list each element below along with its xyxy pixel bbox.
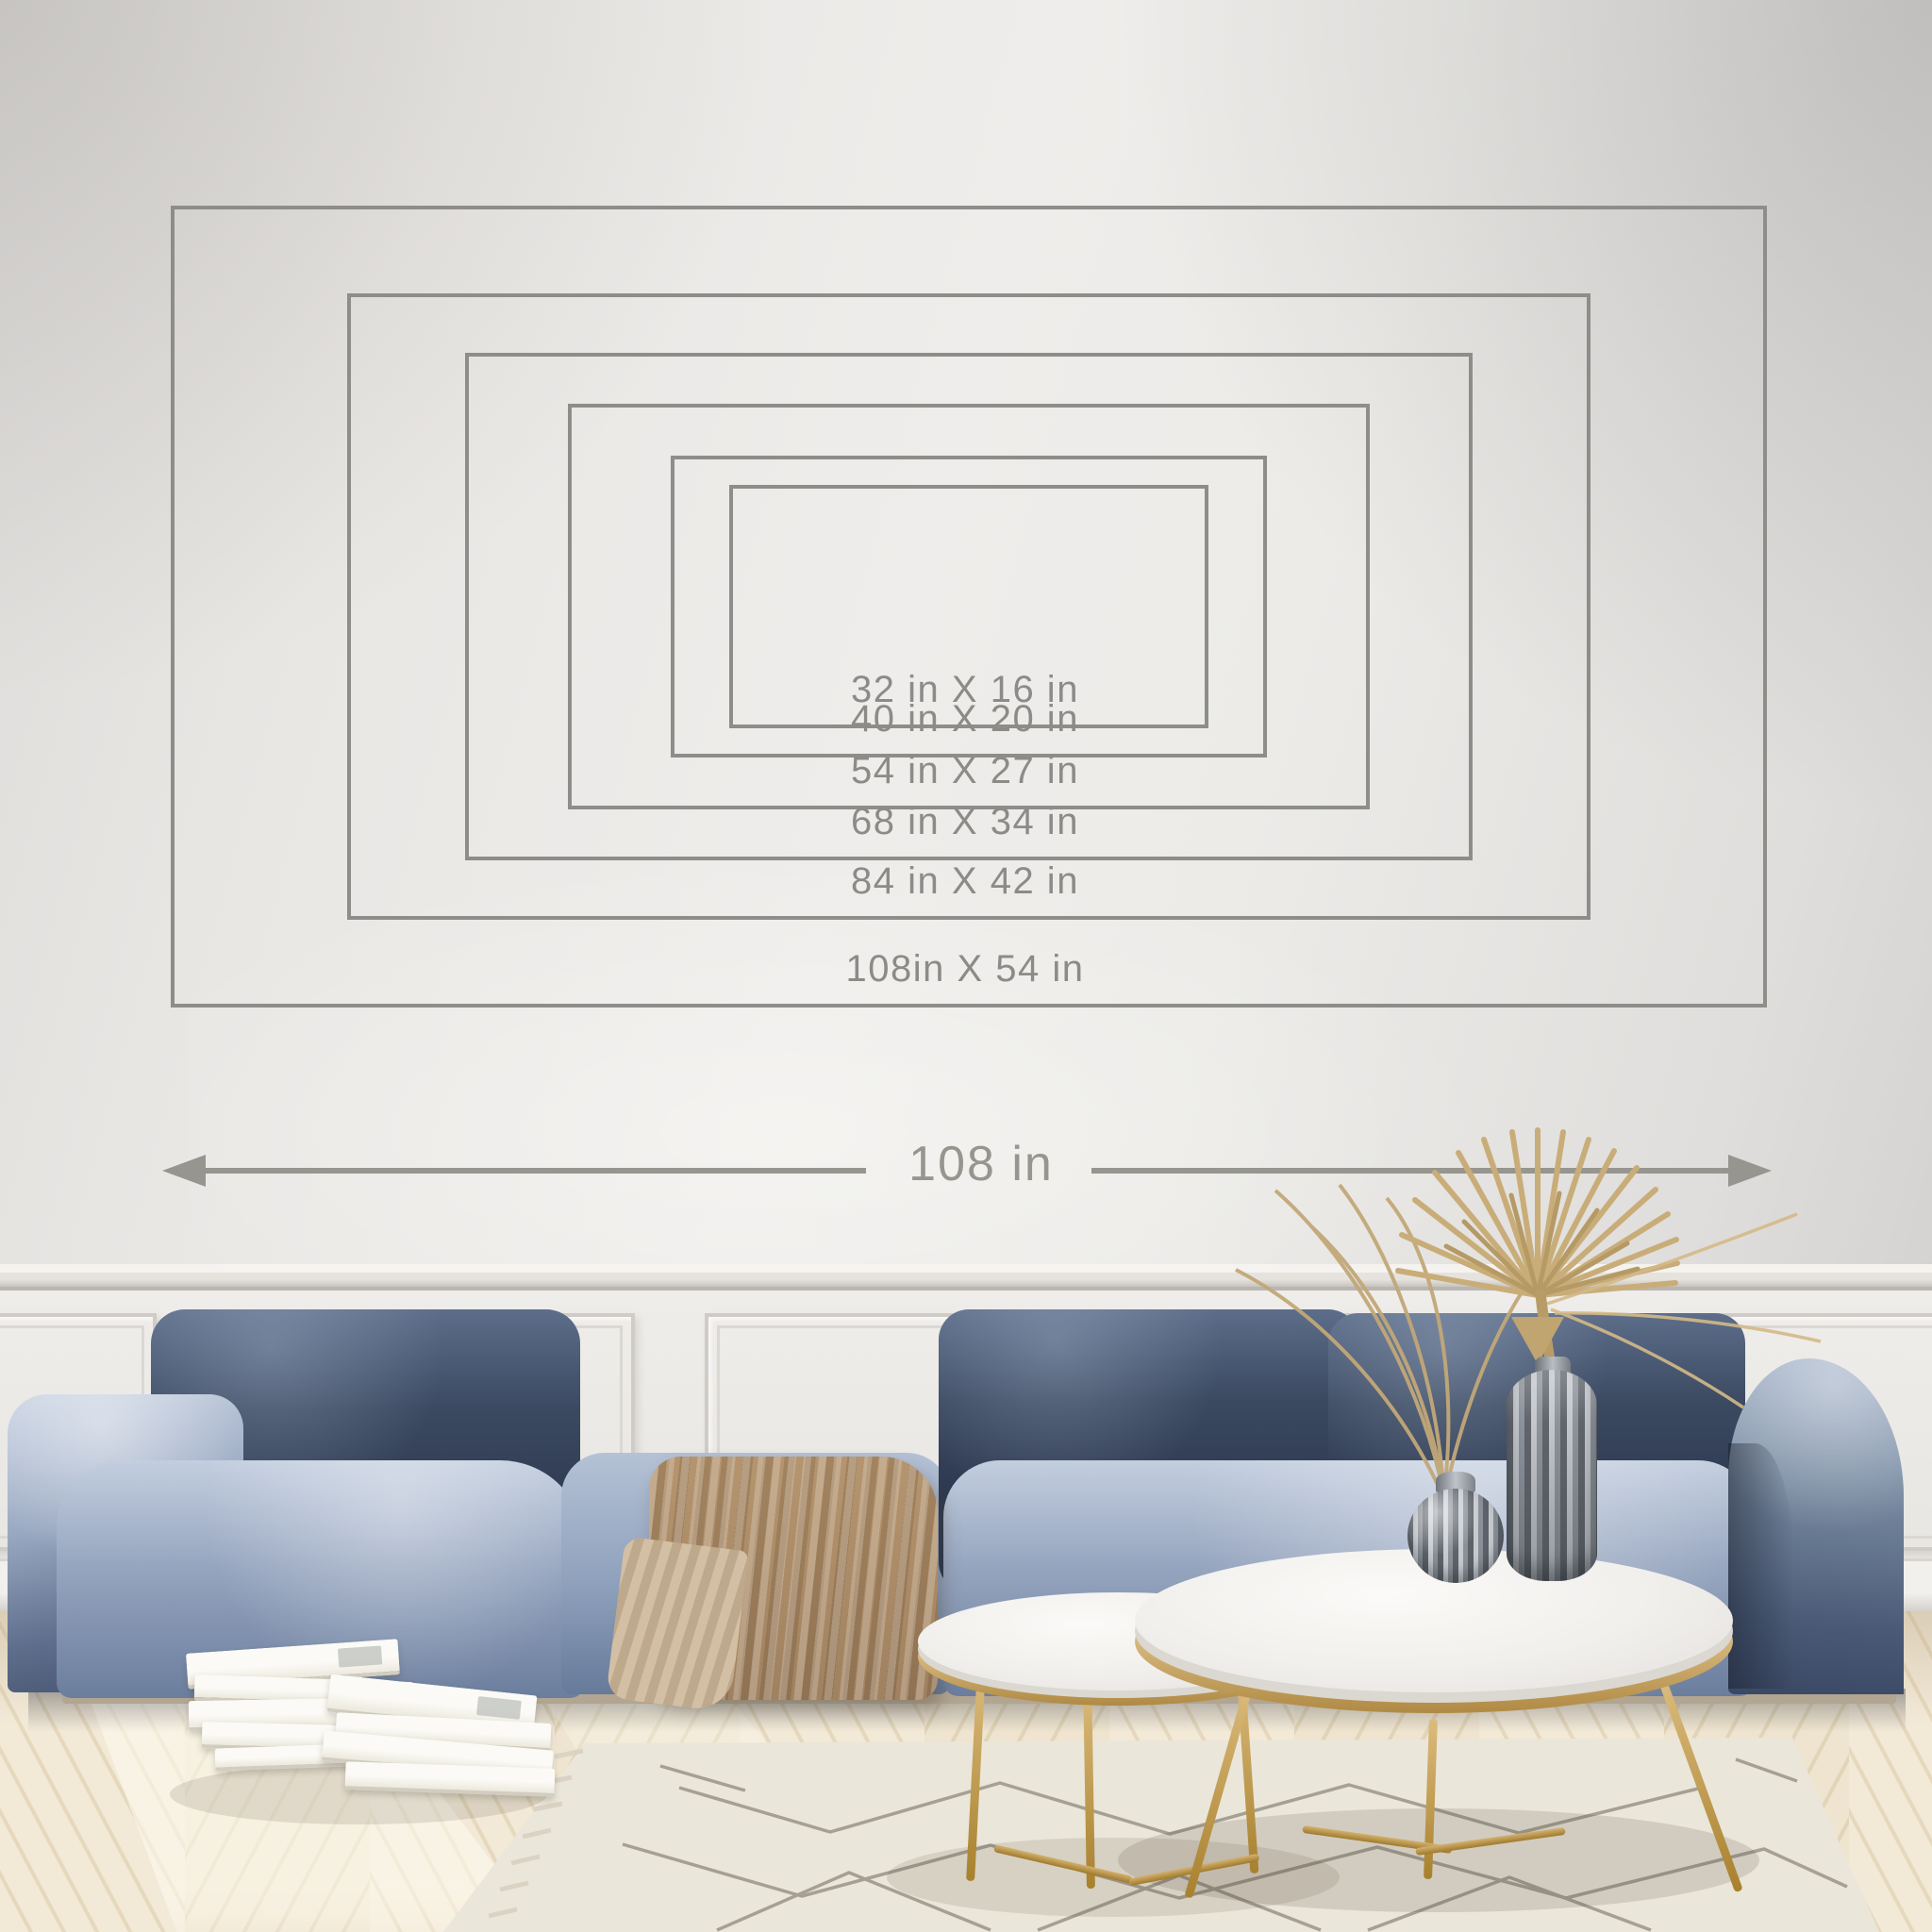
small-ribbed-glass-vase (1407, 1489, 1504, 1583)
product-size-guide-mockup: 108 in 32 in X 16 in40 in X 20 in54 in X… (0, 0, 1932, 1932)
dried-palm-and-grass (0, 0, 1932, 1932)
tall-fluted-glass-vase (1507, 1370, 1597, 1581)
